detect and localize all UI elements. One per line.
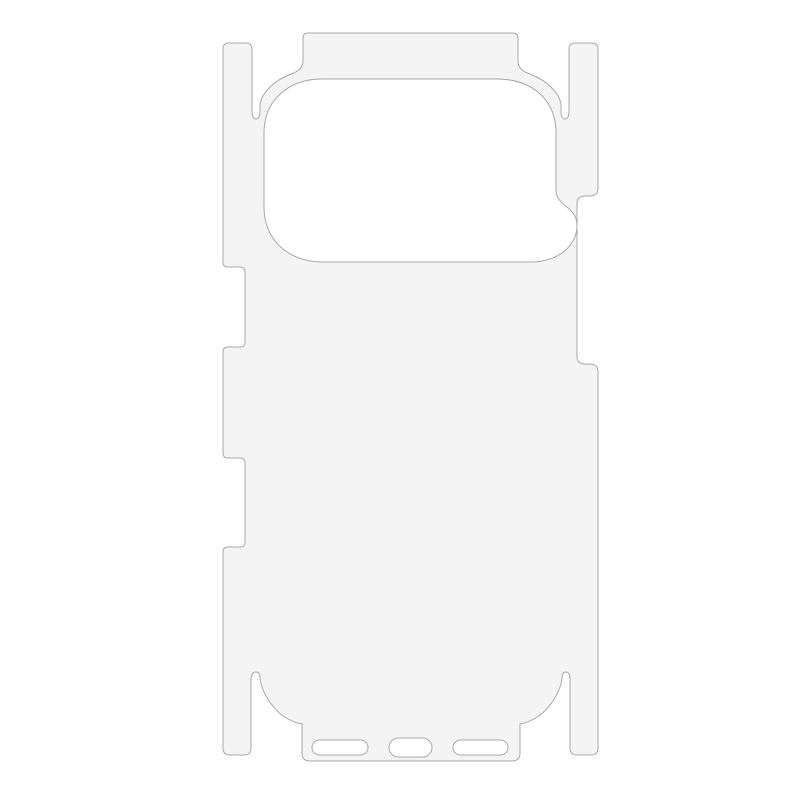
speaker-slot-right bbox=[453, 740, 508, 755]
charging-port-slot bbox=[389, 738, 432, 757]
camera-cutout bbox=[264, 79, 577, 262]
phone-film-image bbox=[0, 0, 800, 800]
speaker-slot-left bbox=[312, 740, 368, 755]
product-image-canvas bbox=[0, 0, 800, 800]
